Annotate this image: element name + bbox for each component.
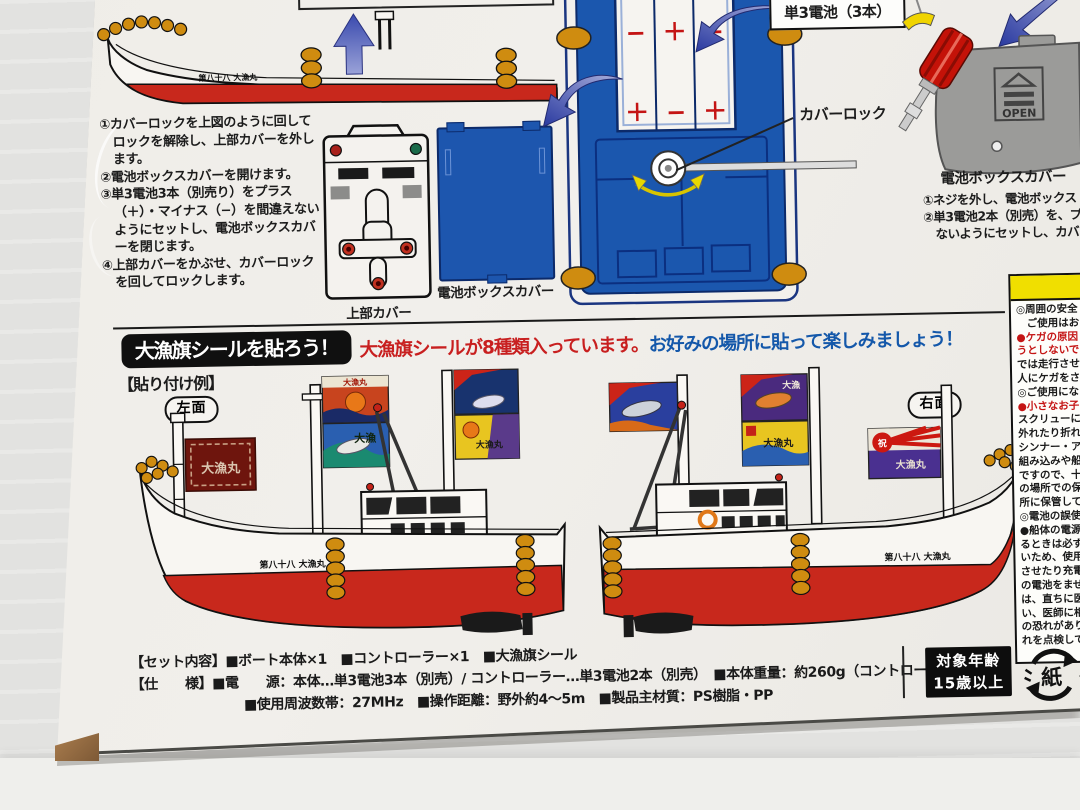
rotate-arrow-icon (902, 13, 934, 30)
svg-text:＋: ＋ (662, 18, 687, 46)
printed-artwork: 第八十八 大漁丸 ①カバーロックを上図のように回してロックを解除し、上部カバーを… (0, 0, 1080, 810)
svg-text:＋: ＋ (703, 97, 728, 125)
cover-slot (539, 148, 545, 174)
svg-text:大漁丸: 大漁丸 (343, 377, 368, 387)
controller-cover-label: 電池ボックスカバー (940, 165, 1066, 188)
battery-cover-diagram (436, 125, 555, 281)
age-badge: 対象年齢 15歳以上 (925, 646, 1012, 698)
wline-item: 組み込みや船体 (1019, 454, 1080, 470)
top-cover-diagram (319, 123, 434, 303)
step-item: ④上部カバーをかぶせ、カバーロックを回してロックします。 (102, 253, 325, 292)
wline-item: の場所での保管 (1019, 481, 1080, 497)
sticker-note-blue: お好みの場所に貼って楽しみましょう！ (648, 329, 962, 356)
wline-item: うとしないで (1017, 343, 1080, 359)
wline-item: 人にケガをさ (1017, 371, 1080, 387)
flag-yellow: 大漁丸 (455, 414, 520, 459)
flag-yellow-tairyomaru: 大漁丸 (742, 421, 809, 466)
open-label: OPEN (1002, 107, 1036, 121)
bow-floats (97, 15, 186, 41)
svg-text:祝: 祝 (878, 437, 887, 449)
wline-item: スクリューに指 (1018, 412, 1080, 428)
age-badge-line1: 対象年齢 (925, 649, 1011, 673)
cover-slot (445, 149, 451, 175)
recycle-kanji: 紙 (1041, 665, 1062, 689)
sticker-note-red: 大漁旗シールが8種類入っています。 (359, 335, 648, 361)
step-item: ③単3電池3本（別売り）をプラス（＋）・マイナス（−）を間違えないようにセットし… (100, 183, 323, 257)
svg-text:＋: ＋ (625, 99, 650, 127)
age-badge-line2: 15歳以上 (926, 671, 1012, 695)
bow-floats (136, 456, 178, 484)
wline-item: ◎周囲の安全 (1016, 302, 1080, 318)
bow-flag-text: 大漁丸 (201, 460, 241, 477)
hull-name-text: 第八十八 大漁丸 (198, 72, 258, 83)
wline-item: ◎ご使用にな (1017, 385, 1080, 401)
mast-light (374, 404, 382, 412)
svg-text:大漁: 大漁 (354, 431, 376, 445)
sticker-note: 大漁旗シールが8種類入っています。お好みの場所に貼って楽しみましょう！ (359, 325, 963, 362)
wline-item: ●船体の電源を (1020, 523, 1080, 539)
wline-item: るときは必ず電 (1020, 536, 1080, 552)
cover-tab (446, 122, 464, 132)
top-cover-outline (299, 0, 553, 9)
wline-item: いため、使用し (1020, 550, 1080, 566)
step-item: ①カバーロックを上図のように回してロックを解除し、上部カバーを外します。 (99, 113, 322, 170)
cstep-item: ないようにセットし、カバー (923, 223, 1080, 243)
svg-text:大漁丸: 大漁丸 (476, 438, 504, 451)
flag-fish-sunrays (609, 382, 678, 431)
mast-light (678, 401, 686, 409)
paper-recycle-icon: 紙 (1021, 647, 1080, 704)
wline-item: では走行させ (1017, 357, 1080, 373)
warning-text: ◎周囲の安全 ご使用はお●ケガの原因うとしないででは走行させ人にケガをさ◎ご使用… (1011, 299, 1080, 651)
photo-scene: 第八十八 大漁丸 ①カバーロックを上図のように回してロックを解除し、上部カバーを… (0, 0, 1080, 810)
flag-celebration-risingsun: 祝 大漁丸 (868, 427, 941, 478)
warning-box: ◎周囲の安全 ご使用はお●ケガの原因うとしないででは走行させ人にケガをさ◎ご使用… (1008, 272, 1080, 664)
wline-item: ●ケガの原因 (1016, 330, 1080, 346)
wline-item: は、直ちに医師 (1021, 592, 1080, 608)
battery-cover-label: 電池ボックスカバー (424, 279, 566, 302)
curved-arrow-icon (536, 69, 627, 143)
wline-item: の恐れがありま (1022, 619, 1080, 635)
boat-hull: 第八十八 大漁丸 (97, 8, 560, 109)
wline-item: シンナー・アル (1018, 440, 1080, 456)
wline-item: ですので、十分 (1019, 467, 1080, 483)
battery-pack-label: 単3電池（3本） (769, 0, 906, 30)
svg-text:−: − (625, 19, 646, 47)
wline-item: 外れたり折れた (1018, 426, 1080, 442)
left-boat-illustration: 大漁丸 大漁丸 大漁 (126, 362, 576, 665)
top-cover-label: 上部カバー (319, 301, 439, 323)
cover-lock-label: カバーロック (799, 102, 886, 125)
svg-text:大漁丸: 大漁丸 (896, 458, 927, 472)
sticker-section-header: 大漁旗シールを貼ろう！ (121, 330, 352, 368)
wline-item: ◎電池の誤使用 (1020, 509, 1080, 525)
up-arrow-icon (333, 14, 374, 75)
controller-steps: ①ネジを外し、電池ボックス②単3電池2本（別売）を、プ ないようにセットし、カバ… (923, 189, 1080, 243)
wline-item: ご使用はお (1016, 316, 1080, 332)
red-indicator-dot (330, 145, 341, 156)
battery-install-steps: ①カバーロックを上図のように回してロックを解除し、上部カバーを外します。②電池ボ… (99, 113, 324, 293)
warning-box-header (1010, 274, 1080, 301)
svg-text:大漁: 大漁 (782, 379, 800, 391)
green-indicator-dot (410, 143, 421, 154)
flag-sunrays-fish (454, 369, 519, 414)
wline-item: い、医師に相談 (1021, 605, 1080, 621)
svg-text:−: − (666, 98, 687, 126)
wline-item: ●小さなお子 (1018, 399, 1080, 415)
svg-text:大漁丸: 大漁丸 (763, 436, 794, 450)
wline-item: させたり充電、分 (1021, 564, 1080, 580)
flag-purple-fish: 大漁 (741, 374, 808, 421)
wline-item: 所に保管してく (1019, 495, 1080, 511)
wline-item: の電池をまぜて (1021, 578, 1080, 594)
right-boat-illustration: 大漁 大漁丸 祝 大漁丸 (569, 362, 1039, 670)
